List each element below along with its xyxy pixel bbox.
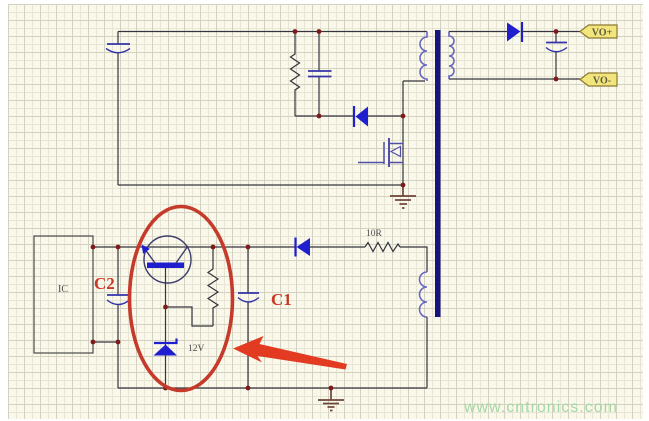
ground-bottom-icon [318,388,344,411]
primary-winding [420,32,427,82]
c1-capacitor [238,247,259,388]
vo-minus-flag: VO- [580,73,617,87]
snubber-capacitor [308,32,332,117]
junction-dots-lower [91,245,334,391]
c1-label: C1 [271,290,292,309]
top-circuit: VO+ VO- [106,22,617,317]
clamp-diode [354,106,403,127]
series-resistor-label: 10R [366,229,383,239]
schematic-drawing: VO+ VO- IC [0,0,649,421]
zener-voltage-label: 12V [188,344,205,354]
c2-label: C2 [94,274,115,293]
transformer-core [435,30,441,317]
series-resistor-10r [365,243,400,252]
output-diode [507,22,580,42]
base-node-wire [166,307,214,326]
feedback-diode [296,238,311,257]
transistor-base-bar [147,263,184,269]
transformer [420,30,454,317]
watermark-text: www.cntronics.com [463,399,618,416]
snubber-resistor [291,32,300,117]
highlight-ellipse [130,207,233,391]
ground-top-icon [390,185,416,208]
input-capacitor [106,32,130,186]
vo-plus-flag: VO+ [580,25,617,39]
auxiliary-winding [420,272,427,317]
output-capacitor [546,32,567,80]
ic-label: IC [58,284,68,295]
ic-block: IC [34,236,93,353]
c2-capacitor [107,247,130,388]
vo-minus-label: VO- [593,76,611,87]
zener-diode [154,307,178,388]
mosfet-body-arrow-icon [391,147,401,157]
schematic-canvas: VO+ VO- IC [0,0,649,421]
collector-resistor [208,247,218,326]
secondary-winding [449,32,454,80]
junction-dots-top [293,29,559,187]
annotation-arrow-icon [233,336,347,370]
lower-rail-right [400,247,427,272]
power-mosfet [358,138,403,167]
vo-plus-label: VO+ [592,28,613,39]
